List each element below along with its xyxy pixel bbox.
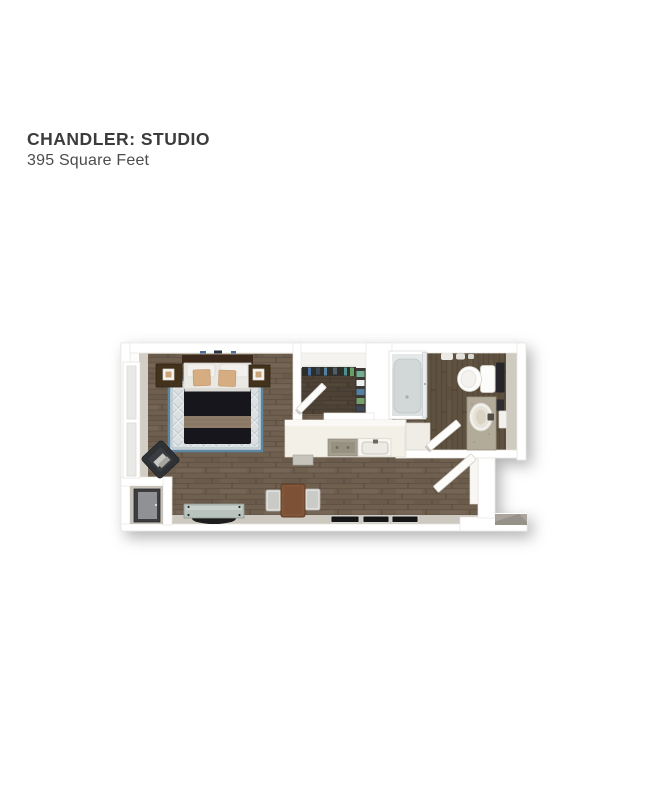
wall-top xyxy=(121,343,526,353)
wall-closet-bath-divider xyxy=(366,343,392,422)
closet-shelf xyxy=(302,366,356,368)
vanity-faucet xyxy=(488,414,495,421)
toilet-wall-frame xyxy=(496,363,505,393)
headboard xyxy=(182,355,253,364)
accent-pillow-left xyxy=(193,369,211,386)
vanity-towel xyxy=(499,411,507,428)
shower xyxy=(389,351,427,419)
floor-plan: 3D overhead rendering of the Chandler st… xyxy=(0,0,657,791)
shower-drain xyxy=(405,395,408,398)
shower-glass-door xyxy=(423,353,428,418)
kitchen-faucet xyxy=(373,440,378,444)
bathroom-right-wall-face xyxy=(506,353,517,450)
accent-pillow-right xyxy=(218,370,236,387)
dining-table xyxy=(281,484,305,517)
wall-entry-right xyxy=(478,458,495,518)
utility-closet xyxy=(130,486,163,524)
floor-plan-body xyxy=(121,343,527,531)
wall-bathroom-bottom xyxy=(396,450,517,458)
dishwasher xyxy=(293,455,313,465)
bed-throw-blanket xyxy=(184,416,251,428)
entry-landing xyxy=(495,514,527,525)
nightstand-left xyxy=(156,364,182,387)
wall-right xyxy=(517,343,526,460)
walk-in-closet xyxy=(300,353,366,414)
bed xyxy=(182,351,253,445)
wall-utility-right xyxy=(163,477,172,525)
page: { "page": { "width": 657, "height": 791,… xyxy=(0,0,657,791)
window xyxy=(123,362,140,478)
entry-door-jamb xyxy=(470,458,478,504)
floor-mats xyxy=(331,516,418,523)
nightstand-right xyxy=(249,365,270,387)
